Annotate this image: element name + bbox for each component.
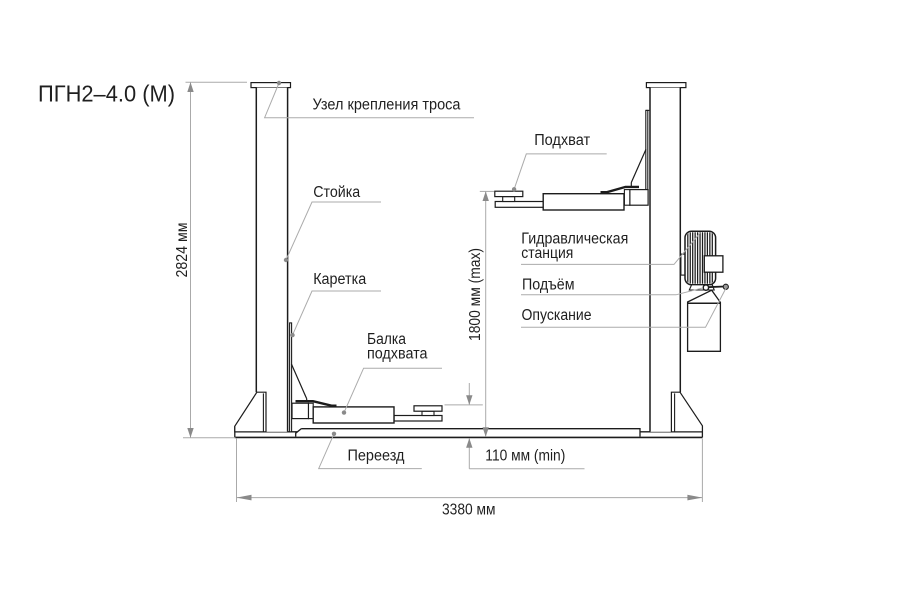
- svg-text:3380 мм: 3380 мм: [442, 502, 496, 519]
- svg-text:1800 мм (max): 1800 мм (max): [467, 248, 484, 341]
- svg-text:ПГН2–4.0 (М): ПГН2–4.0 (М): [38, 81, 175, 107]
- svg-text:подхвата: подхвата: [367, 346, 428, 363]
- svg-text:Стойка: Стойка: [313, 184, 360, 201]
- svg-text:110 мм (min): 110 мм (min): [485, 447, 565, 464]
- svg-text:Каретка: Каретка: [313, 271, 366, 288]
- svg-text:Опускание: Опускание: [522, 307, 592, 324]
- svg-text:станция: станция: [521, 245, 573, 262]
- svg-text:Подхват: Подхват: [534, 132, 590, 149]
- svg-text:Подъём: Подъём: [522, 276, 575, 293]
- svg-text:Узел крепления троса: Узел крепления троса: [313, 96, 461, 113]
- svg-text:2824 мм: 2824 мм: [174, 223, 191, 278]
- svg-text:Переезд: Переезд: [348, 448, 405, 465]
